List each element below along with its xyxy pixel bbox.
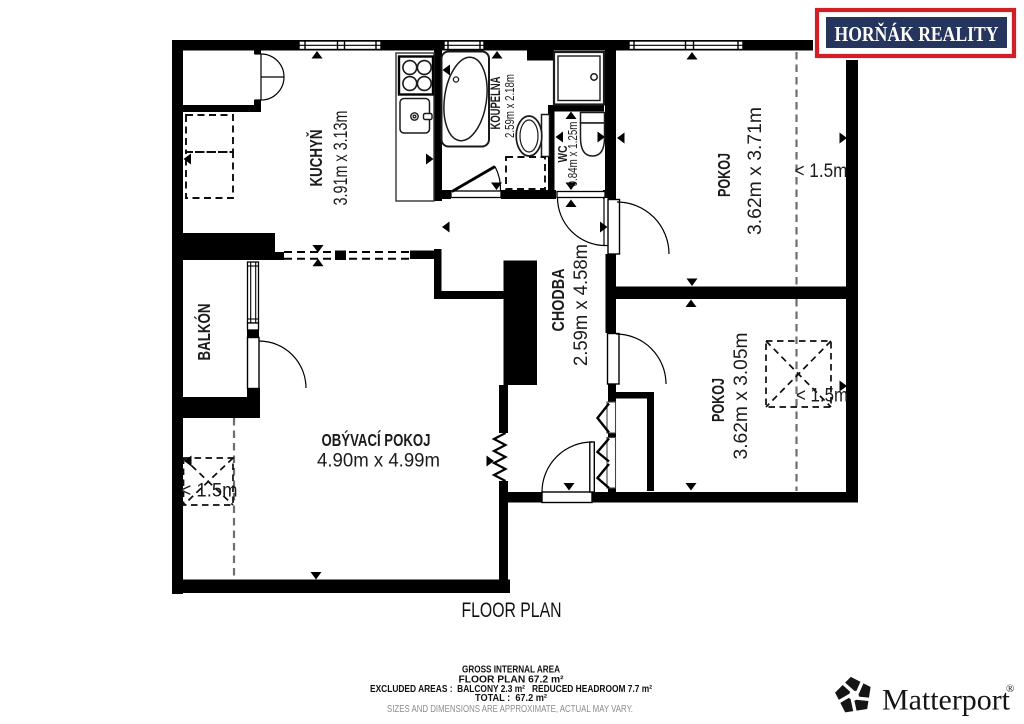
svg-text:TOTAL : 67.2 m²: TOTAL : 67.2 m²: [475, 692, 547, 704]
svg-text:POKOJ: POKOJ: [708, 378, 728, 422]
svg-text:FLOOR PLAN: FLOOR PLAN: [462, 598, 562, 622]
svg-text:OBÝVACÍ POKOJ: OBÝVACÍ POKOJ: [322, 429, 431, 450]
svg-text:POKOJ: POKOJ: [714, 153, 734, 197]
svg-text:0.84m x 1.25m: 0.84m x 1.25m: [566, 122, 580, 187]
svg-text:2.59m x 2.18m: 2.59m x 2.18m: [503, 74, 517, 138]
svg-text:< 1.5m: < 1.5m: [181, 481, 238, 502]
svg-text:CHODBA: CHODBA: [548, 268, 568, 331]
svg-text:KUCHYŇ: KUCHYŇ: [305, 130, 326, 187]
svg-text:3.62m x 3.71m: 3.62m x 3.71m: [745, 107, 766, 235]
svg-text:< 1.5m: < 1.5m: [795, 161, 848, 182]
svg-text:2.59m x 4.58m: 2.59m x 4.58m: [571, 244, 592, 366]
svg-text:< 1.5m: < 1.5m: [796, 386, 848, 407]
svg-text:Matterport: Matterport: [882, 684, 1011, 717]
svg-text:BALKÓN: BALKÓN: [193, 304, 214, 361]
svg-text:4.90m x 4.99m: 4.90m x 4.99m: [317, 451, 440, 472]
svg-text:SIZES AND DIMENSIONS ARE APPRO: SIZES AND DIMENSIONS ARE APPROXIMATE, AC…: [387, 704, 633, 715]
svg-text:3.91m x 3.13m: 3.91m x 3.13m: [331, 111, 352, 206]
svg-text:®: ®: [1006, 683, 1014, 695]
svg-text:3.62m x 3.05m: 3.62m x 3.05m: [731, 333, 752, 460]
svg-text:HORŇÁK REALITY: HORŇÁK REALITY: [835, 22, 999, 46]
svg-text:KOUPELNA: KOUPELNA: [488, 76, 503, 129]
